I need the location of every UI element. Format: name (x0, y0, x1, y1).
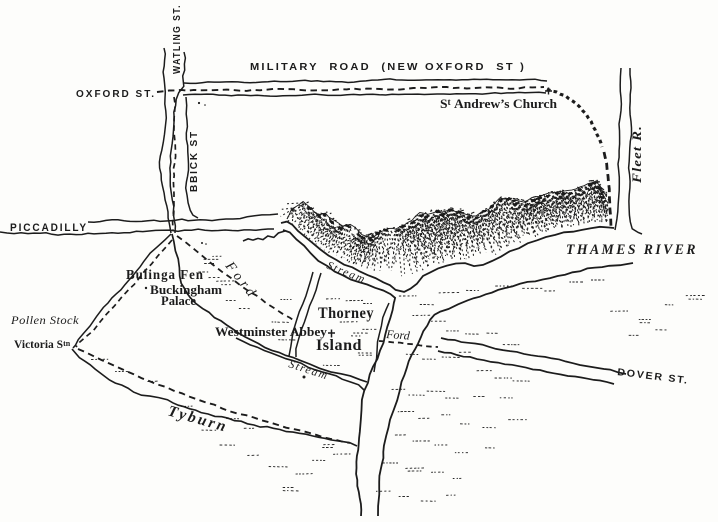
svg-text:Ford: Ford (385, 327, 411, 343)
svg-text:Westminster Abbey: Westminster Abbey (215, 324, 328, 339)
svg-text:WATLING ST.: WATLING ST. (171, 4, 183, 74)
svg-text:Thorney: Thorney (318, 305, 374, 322)
svg-text:Pollen Stock: Pollen Stock (10, 313, 79, 327)
svg-text:OXFORD ST.: OXFORD ST. (76, 89, 156, 100)
svg-text:Victoria Stn: Victoria Stn (14, 339, 71, 351)
svg-text:Palace: Palace (161, 294, 196, 308)
svg-text:PICCADILLY: PICCADILLY (10, 222, 88, 234)
svg-text:Island: Island (316, 337, 362, 354)
svg-text:THAMES RIVER: THAMES RIVER (566, 242, 698, 258)
svg-text:MILITARY ROAD (NEW OXFORD S: MILITARY ROAD (NEW OXFORD ST ) (250, 62, 526, 73)
svg-text:BBICK ST: BBICK ST (189, 130, 200, 192)
svg-text:Fleet R.: Fleet R. (629, 125, 644, 184)
svg-text:St Andrew’s Church: St Andrew’s Church (440, 96, 558, 111)
svg-text:Bulinga Fen: Bulinga Fen (126, 267, 204, 282)
